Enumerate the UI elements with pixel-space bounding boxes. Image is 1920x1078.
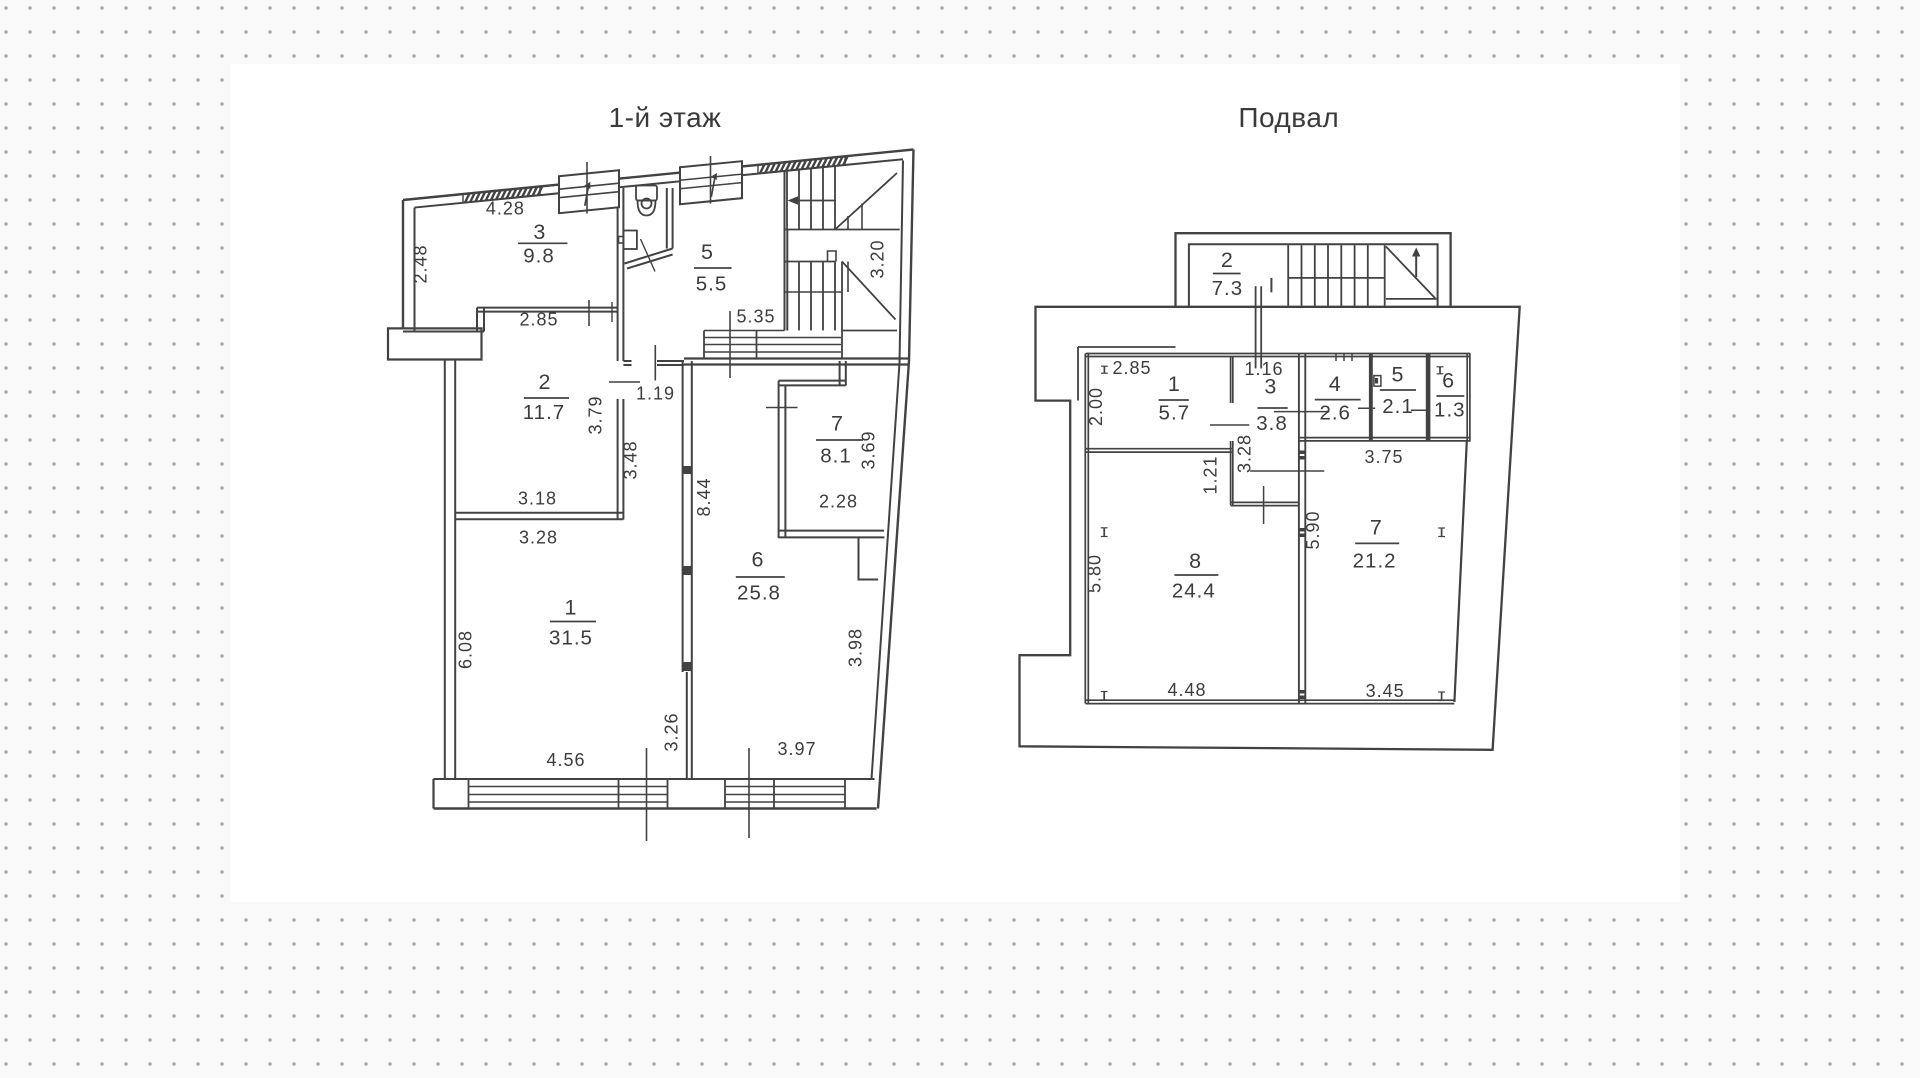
- svg-text:2.85: 2.85: [1112, 358, 1151, 378]
- svg-text:2.28: 2.28: [819, 492, 858, 512]
- svg-text:1.19: 1.19: [636, 384, 675, 404]
- svg-text:6: 6: [752, 548, 765, 572]
- svg-text:6.08: 6.08: [456, 630, 476, 669]
- svg-text:3.98: 3.98: [846, 628, 866, 667]
- svg-text:1: 1: [565, 596, 578, 620]
- svg-text:1: 1: [1168, 372, 1181, 396]
- svg-text:4.28: 4.28: [486, 199, 525, 219]
- svg-text:1.21: 1.21: [1201, 455, 1221, 494]
- svg-text:2: 2: [1221, 248, 1234, 272]
- svg-text:5.80: 5.80: [1084, 554, 1104, 593]
- svg-text:31.5: 31.5: [549, 627, 593, 650]
- svg-text:2.85: 2.85: [519, 310, 558, 330]
- svg-text:4: 4: [1329, 372, 1342, 396]
- svg-text:3: 3: [533, 220, 546, 244]
- svg-text:3.26: 3.26: [662, 712, 682, 751]
- svg-text:2.48: 2.48: [411, 244, 431, 283]
- svg-text:8.1: 8.1: [820, 445, 852, 468]
- svg-text:25.8: 25.8: [737, 582, 781, 605]
- svg-text:3.79: 3.79: [586, 395, 606, 434]
- svg-text:11.7: 11.7: [523, 401, 565, 424]
- svg-text:24.4: 24.4: [1172, 580, 1216, 603]
- svg-text:5.90: 5.90: [1303, 510, 1323, 549]
- svg-text:3.20: 3.20: [868, 239, 888, 278]
- svg-text:7: 7: [831, 412, 844, 436]
- svg-text:2.00: 2.00: [1086, 387, 1106, 426]
- svg-text:8: 8: [1189, 549, 1202, 573]
- svg-text:2: 2: [539, 370, 552, 394]
- svg-text:5.7: 5.7: [1159, 402, 1191, 425]
- svg-text:7: 7: [1370, 516, 1383, 540]
- svg-text:3: 3: [1264, 374, 1277, 398]
- svg-text:3.28: 3.28: [1234, 434, 1254, 473]
- svg-text:4.48: 4.48: [1167, 680, 1206, 700]
- svg-text:3.18: 3.18: [518, 489, 557, 509]
- svg-text:1-й этаж: 1-й этаж: [609, 102, 722, 133]
- svg-text:5.5: 5.5: [696, 273, 728, 296]
- svg-text:3.8: 3.8: [1256, 412, 1288, 435]
- svg-text:3.75: 3.75: [1364, 447, 1403, 467]
- svg-text:7.3: 7.3: [1212, 277, 1244, 300]
- svg-text:3.97: 3.97: [777, 739, 816, 759]
- svg-text:8.44: 8.44: [694, 477, 714, 516]
- svg-text:4.56: 4.56: [546, 750, 585, 770]
- svg-text:3.45: 3.45: [1366, 681, 1405, 701]
- svg-text:3.69: 3.69: [859, 430, 879, 469]
- svg-text:Подвал: Подвал: [1238, 102, 1339, 133]
- svg-text:6: 6: [1442, 368, 1455, 392]
- svg-text:1.3: 1.3: [1434, 399, 1466, 422]
- svg-text:9.8: 9.8: [523, 245, 555, 268]
- svg-text:2.6: 2.6: [1319, 402, 1351, 425]
- svg-text:21.2: 21.2: [1353, 550, 1397, 573]
- svg-text:5: 5: [1392, 362, 1405, 386]
- svg-text:2.1: 2.1: [1382, 395, 1414, 418]
- svg-text:3.28: 3.28: [519, 528, 558, 548]
- svg-text:3.48: 3.48: [621, 440, 641, 479]
- svg-text:5: 5: [701, 240, 714, 264]
- svg-text:5.35: 5.35: [736, 307, 775, 327]
